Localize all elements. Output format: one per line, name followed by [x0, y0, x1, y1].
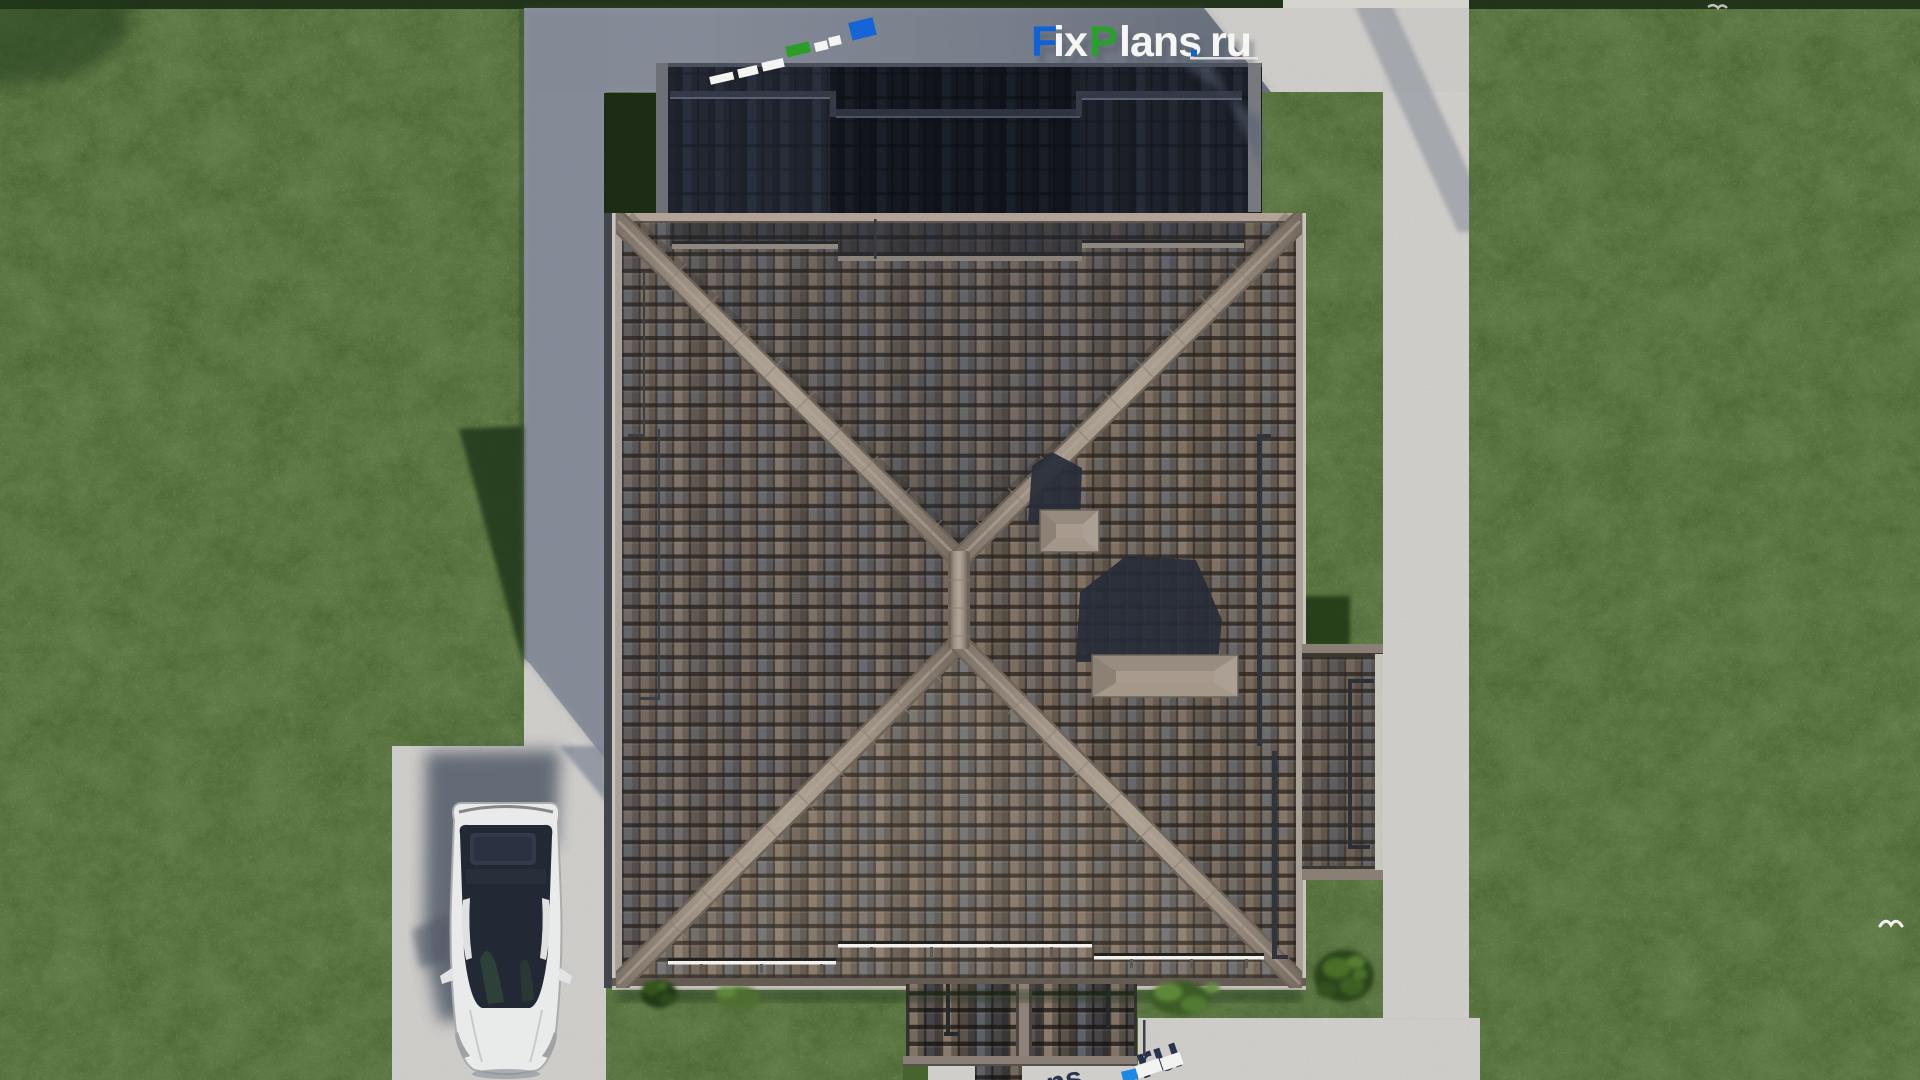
svg-text:ix: ix: [1053, 18, 1088, 66]
svg-text:P: P: [1089, 18, 1117, 66]
